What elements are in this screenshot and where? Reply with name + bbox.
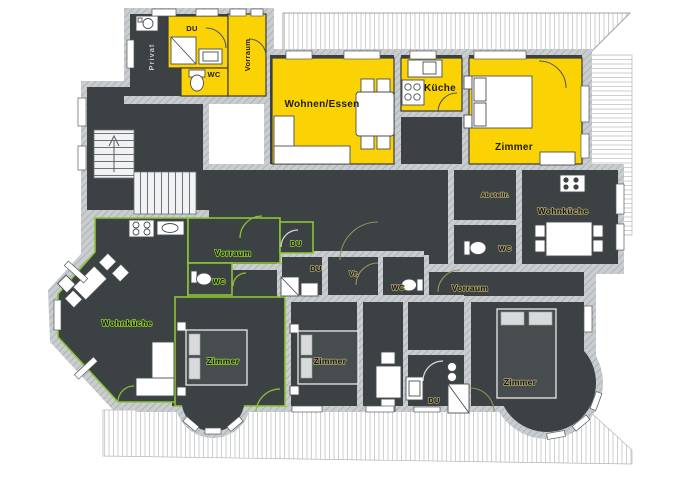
label-wohnen-essen: Wohnen/Essen (284, 99, 359, 110)
roof-terrace-top (283, 13, 630, 55)
label-vorraum-top: Vorraum (243, 39, 252, 71)
toilet-middle (402, 279, 424, 291)
label-privat: Privat (147, 44, 156, 71)
label-wc-top: WC (207, 70, 220, 79)
stove-right (560, 175, 585, 192)
label-du-right: DU (428, 396, 439, 405)
label-du-middle: DU (310, 264, 321, 273)
room-du-green (280, 222, 313, 253)
stove-yellow (402, 80, 424, 105)
washing-machine (136, 16, 158, 31)
label-wc-green: WC (212, 277, 225, 286)
label-wohnkueche-right: Wohnküche (538, 206, 589, 216)
kitchen-sink (408, 60, 442, 77)
label-zimmer-right: Zimmer (504, 377, 537, 387)
shower-top (171, 37, 196, 64)
label-vr-middle: Vr. (349, 269, 359, 278)
label-wc-middle: WC (391, 283, 404, 292)
label-vorraum-green: Vorraum (215, 248, 252, 258)
toilet-top (189, 70, 205, 91)
label-du-top: DU (186, 24, 197, 33)
floor-plan-page: DU WC Vorraum Privat Wohnen/Essen Küche … (0, 0, 700, 500)
vanity-top (199, 49, 222, 64)
label-wohnkueche-green: Wohnküche (102, 318, 153, 328)
stove-green (129, 220, 154, 237)
label-abstellraum: Abstellr. (481, 192, 509, 199)
sink-green (157, 221, 184, 235)
label-wc-right: WC (498, 244, 511, 253)
label-zimmer-top-right: Zimmer (495, 142, 533, 153)
label-vorraum-right: Vorraum (452, 283, 489, 293)
label-du-green: DU (290, 239, 301, 248)
label-zimmer-green: Zimmer (207, 356, 240, 366)
toilet-right (464, 241, 486, 255)
label-kueche: Küche (424, 83, 456, 94)
label-zimmer-middle: Zimmer (314, 356, 347, 366)
floor-plan: DU WC Vorraum Privat Wohnen/Essen Küche … (0, 0, 700, 500)
